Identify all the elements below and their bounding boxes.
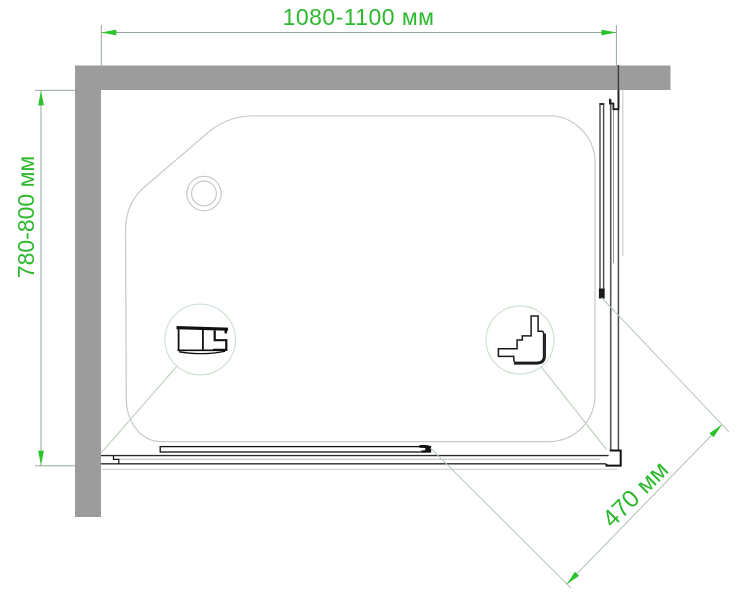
svg-text:1080-1100 мм: 1080-1100 мм xyxy=(283,4,435,30)
svg-text:780-800 мм: 780-800 мм xyxy=(13,156,39,278)
